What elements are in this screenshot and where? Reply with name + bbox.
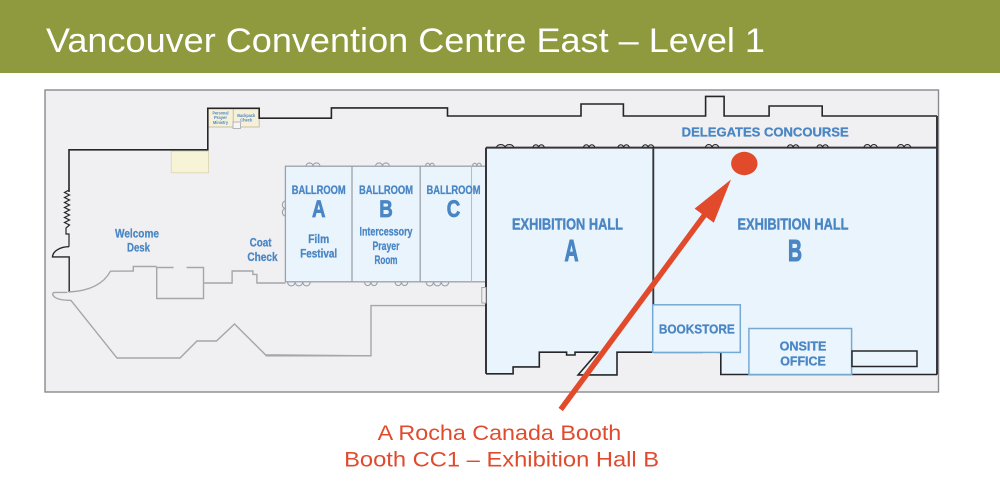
svg-text:Vancouver Convention Centre Ea: Vancouver Convention Centre East – Level… <box>46 22 765 60</box>
svg-text:A: A <box>565 233 579 268</box>
svg-text:Welcome: Welcome <box>115 227 159 241</box>
svg-text:Room: Room <box>375 254 398 267</box>
svg-text:Check: Check <box>247 250 277 264</box>
svg-text:ONSITE: ONSITE <box>780 338 827 353</box>
svg-text:OFFICE: OFFICE <box>780 353 826 368</box>
svg-text:Prayer: Prayer <box>373 240 400 253</box>
svg-text:C: C <box>447 196 461 223</box>
svg-text:BALLROOM: BALLROOM <box>359 184 413 197</box>
svg-text:DELEGATES CONCOURSE: DELEGATES CONCOURSE <box>682 125 849 140</box>
svg-text:A: A <box>312 196 326 223</box>
svg-text:Check: Check <box>240 118 252 123</box>
svg-text:Festival: Festival <box>300 248 337 261</box>
svg-text:B: B <box>379 196 393 223</box>
svg-text:Coat: Coat <box>250 235 272 249</box>
svg-text:Film: Film <box>308 233 329 246</box>
svg-text:Ministry: Ministry <box>213 120 228 125</box>
svg-text:BALLROOM: BALLROOM <box>427 184 481 197</box>
svg-text:B: B <box>788 233 802 268</box>
svg-text:BOOKSTORE: BOOKSTORE <box>659 321 735 336</box>
svg-text:BALLROOM: BALLROOM <box>292 184 346 197</box>
svg-text:Booth CC1 – Exhibition Hall B: Booth CC1 – Exhibition Hall B <box>344 447 659 471</box>
svg-text:EXHIBITION HALL: EXHIBITION HALL <box>512 216 623 233</box>
svg-text:Intercessory: Intercessory <box>360 226 413 239</box>
svg-text:Desk: Desk <box>127 241 150 255</box>
svg-text:EXHIBITION HALL: EXHIBITION HALL <box>738 216 849 233</box>
svg-text:A Rocha Canada Booth: A Rocha Canada Booth <box>378 421 622 445</box>
